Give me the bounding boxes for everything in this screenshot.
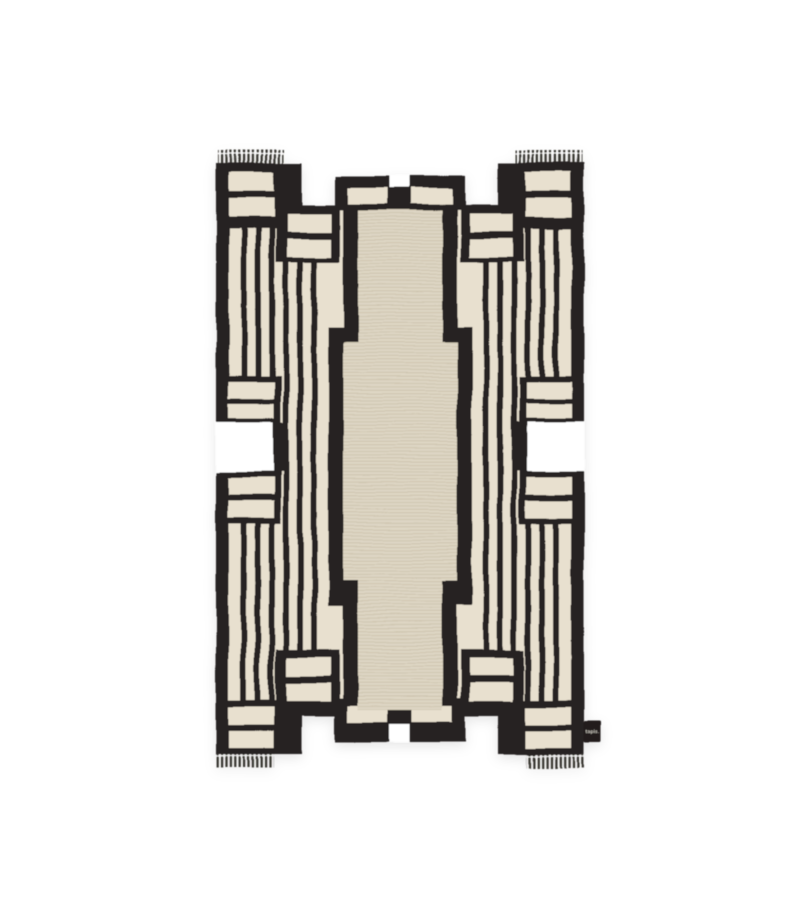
brand-tag: tapis.	[584, 722, 601, 743]
fringe-bottom-left	[216, 754, 274, 767]
rug-left-half	[216, 150, 400, 767]
brand-tag-label: tapis.	[586, 730, 600, 736]
product-photo-canvas: tapis.	[0, 0, 800, 907]
rug-product-photo: tapis.	[0, 0, 800, 907]
fringe-top-left	[218, 150, 284, 163]
rug-right-half	[400, 150, 584, 767]
rug: tapis.	[216, 150, 601, 767]
